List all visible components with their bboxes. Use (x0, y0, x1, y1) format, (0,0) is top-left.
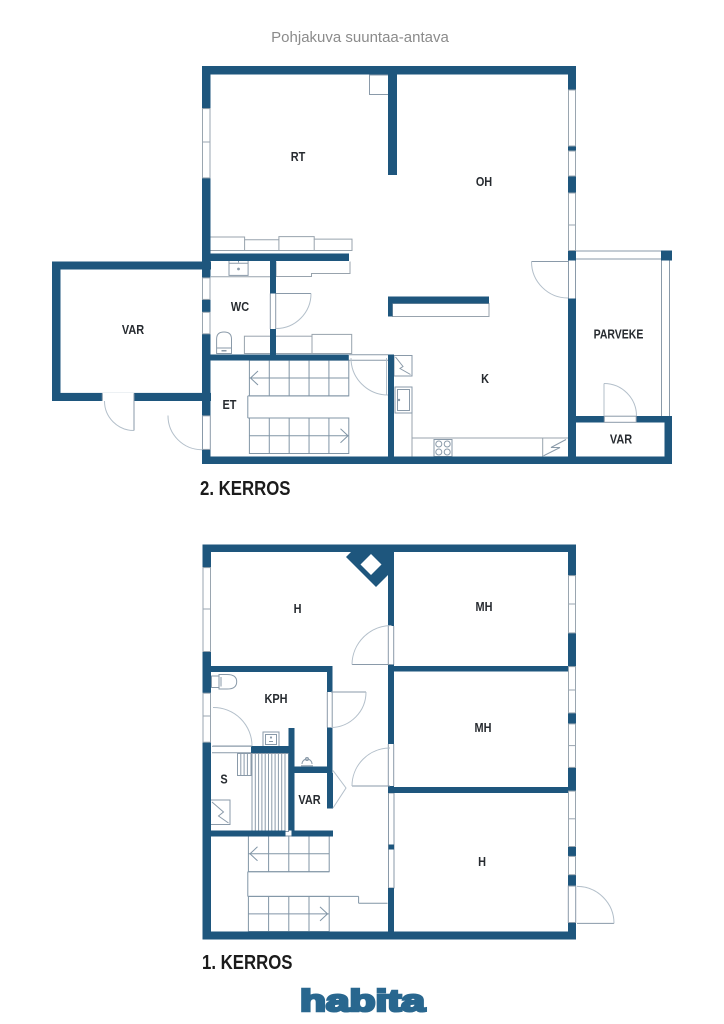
svg-text:1. KERROS: 1. KERROS (202, 951, 292, 974)
svg-text:MH: MH (476, 599, 493, 614)
svg-text:VAR: VAR (122, 322, 145, 337)
svg-text:2. KERROS: 2. KERROS (200, 477, 290, 500)
svg-text:H: H (478, 854, 486, 869)
svg-text:H: H (294, 601, 302, 616)
svg-text:PARVEKE: PARVEKE (594, 329, 644, 342)
svg-text:MH: MH (475, 720, 492, 735)
svg-text:VAR: VAR (298, 792, 321, 807)
svg-text:K: K (481, 371, 489, 386)
svg-text:KPH: KPH (264, 691, 287, 706)
svg-text:S: S (220, 772, 227, 787)
svg-text:ET: ET (223, 397, 238, 412)
svg-text:RT: RT (291, 149, 306, 164)
svg-text:VAR: VAR (610, 432, 633, 447)
svg-text:OH: OH (476, 174, 492, 189)
svg-text:habita: habita (300, 983, 426, 1018)
svg-text:WC: WC (231, 299, 249, 314)
svg-text:Pohjakuva suuntaa-antava: Pohjakuva suuntaa-antava (271, 29, 449, 46)
